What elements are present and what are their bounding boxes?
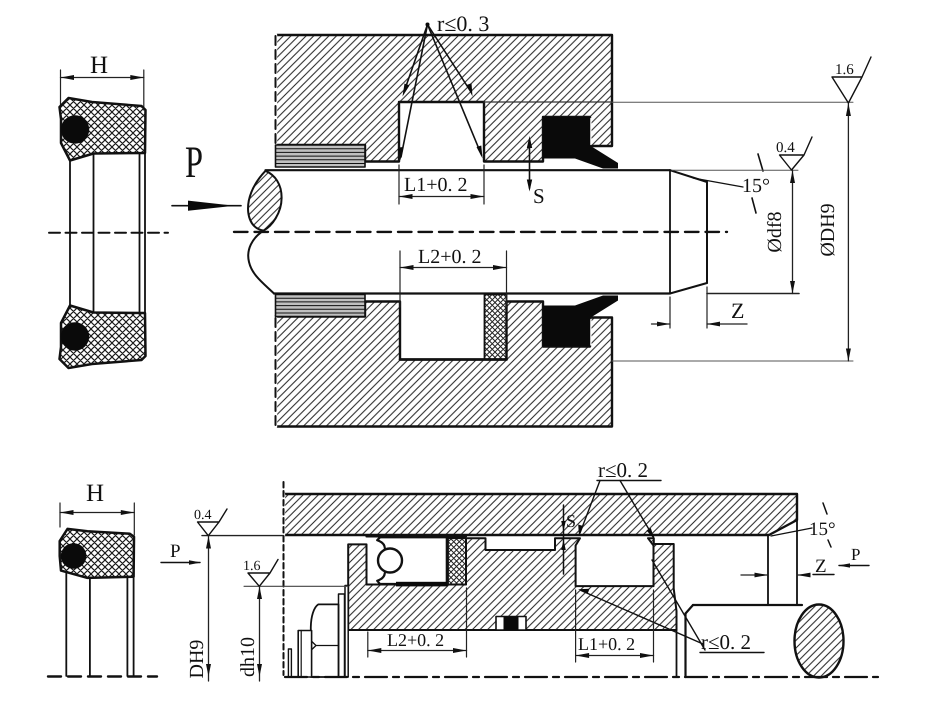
svg-text:ØDH9: ØDH9 [817,203,839,256]
svg-text:H: H [86,480,104,507]
svg-text:Z: Z [731,298,744,323]
svg-text:r≤0. 2: r≤0. 2 [598,458,648,482]
svg-text:1.6: 1.6 [835,62,854,78]
svg-text:0.4: 0.4 [776,140,795,156]
svg-text:L2+0. 2: L2+0. 2 [418,246,482,268]
svg-text:L1+0. 2: L1+0. 2 [578,634,635,654]
svg-text:dh10: dh10 [237,637,259,677]
svg-text:r≤0. 2: r≤0. 2 [701,630,751,654]
svg-text:L1+0. 2: L1+0. 2 [404,174,468,196]
svg-text:S: S [533,184,545,208]
svg-text:DH9: DH9 [186,640,208,679]
svg-text:P: P [170,541,181,562]
svg-text:P: P [851,545,860,564]
svg-text:0.4: 0.4 [194,508,212,523]
svg-text:1.6: 1.6 [243,559,261,574]
svg-text:r≤0. 3: r≤0. 3 [437,11,489,36]
svg-text:H: H [90,52,108,79]
svg-text:15°: 15° [809,519,836,540]
svg-text:P: P [185,137,203,187]
svg-text:Ødf8: Ødf8 [764,211,786,252]
svg-text:S: S [566,511,576,531]
svg-text:L2+0. 2: L2+0. 2 [387,630,444,650]
svg-text:15°: 15° [742,175,770,197]
